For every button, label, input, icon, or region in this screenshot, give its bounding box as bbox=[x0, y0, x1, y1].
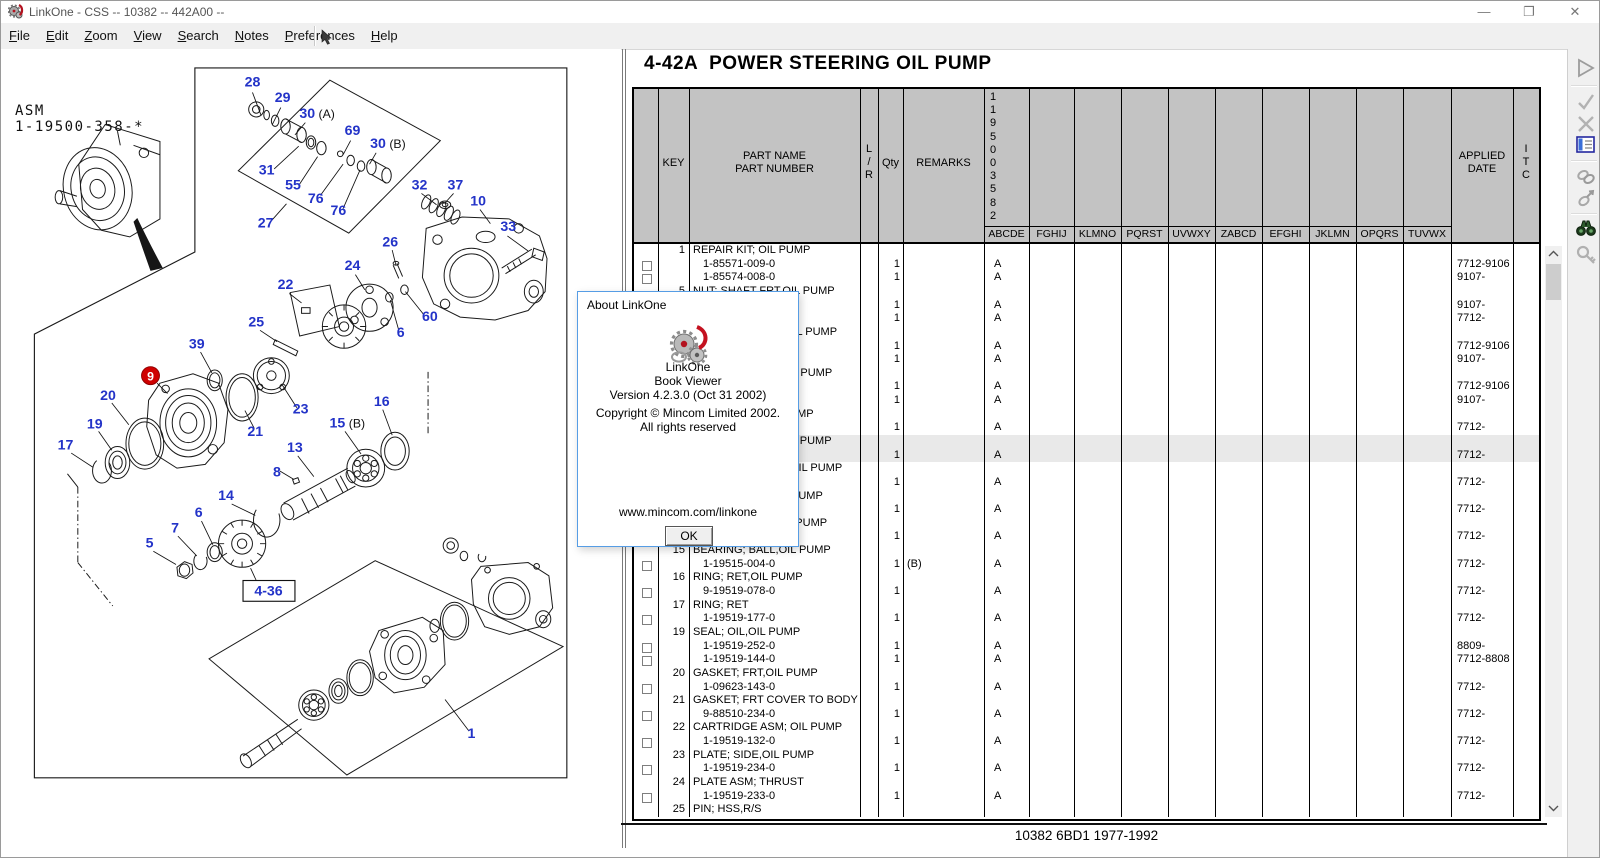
link-icon[interactable] bbox=[1575, 166, 1597, 188]
applied-date-cell: 7712- bbox=[1457, 476, 1485, 490]
grid-line bbox=[1215, 89, 1216, 242]
menu-notes[interactable]: Notes bbox=[227, 23, 277, 43]
table-scrollbar[interactable] bbox=[1545, 246, 1562, 817]
applicability-col-TUVWX: TUVWX bbox=[1403, 228, 1451, 240]
qty-cell: 1 bbox=[878, 558, 900, 572]
part-group-row[interactable]: 23 PLATE; SIDE,OIL PUMP bbox=[634, 749, 1539, 763]
qty-cell: 1 bbox=[878, 312, 900, 326]
part-number-row[interactable]: 1-19519-233-0 1 A 7712- bbox=[634, 790, 1539, 804]
play-icon[interactable] bbox=[1575, 57, 1597, 79]
callout-10[interactable]: 10 bbox=[470, 194, 486, 210]
callout-1[interactable]: 1 bbox=[468, 726, 476, 742]
applicability-cell: A bbox=[994, 353, 1001, 367]
part-group-row[interactable]: 22 CARTRIDGE ASM; OIL PUMP bbox=[634, 721, 1539, 735]
toolbar-separator bbox=[1571, 213, 1597, 215]
part-name-cell: RING; RET bbox=[693, 599, 749, 613]
applicability-cell: A bbox=[994, 653, 1001, 667]
part-number-row[interactable]: 1-19519-252-0 1 A 8809- bbox=[634, 640, 1539, 654]
binoculars-icon[interactable] bbox=[1575, 217, 1597, 239]
qty-cell: 1 bbox=[878, 653, 900, 667]
key-cell: 20 bbox=[658, 667, 685, 681]
callout-19[interactable]: 19 bbox=[87, 417, 103, 433]
callout-55[interactable]: 55 bbox=[285, 178, 301, 194]
callout-39[interactable]: 39 bbox=[189, 336, 205, 352]
part-name-cell: REPAIR KIT; OIL PUMP bbox=[693, 244, 810, 258]
part-number-row[interactable]: 1-85574-008-0 1 A 9107- bbox=[634, 271, 1539, 285]
callout-22[interactable]: 22 bbox=[278, 277, 294, 293]
part-number-cell: 9-19519-078-0 bbox=[703, 585, 775, 599]
callout-5[interactable]: 5 bbox=[146, 535, 154, 551]
key-cell: 24 bbox=[658, 776, 685, 790]
title-bar: LinkOne - CSS -- 10382 -- 442A00 -- — ❐ … bbox=[1, 1, 1600, 23]
callout-69[interactable]: 69 bbox=[345, 123, 361, 139]
callout-27[interactable]: 27 bbox=[258, 215, 274, 231]
key-cell: 22 bbox=[658, 721, 685, 735]
applicability-cell: A bbox=[994, 312, 1001, 326]
figure-frame bbox=[34, 68, 566, 778]
dialog-title-bar[interactable]: About LinkOne bbox=[578, 292, 798, 318]
applicability-cell: A bbox=[994, 612, 1001, 626]
qty-cell: 1 bbox=[878, 585, 900, 599]
applicability-cell: A bbox=[994, 258, 1001, 272]
callout-76[interactable]: 76 bbox=[331, 203, 347, 219]
applicability-cell: A bbox=[994, 394, 1001, 408]
qty-cell: 1 bbox=[878, 340, 900, 354]
qty-cell: 1 bbox=[878, 762, 900, 776]
subheader-line bbox=[984, 226, 1451, 227]
qty-cell: 1 bbox=[878, 530, 900, 544]
part-number-cell: 1-85574-008-0 bbox=[703, 271, 775, 285]
part-group-row[interactable]: 24 PLATE ASM; THRUST bbox=[634, 776, 1539, 790]
section-title: 4-42A POWER STEERING OIL PUMP bbox=[644, 53, 992, 75]
part-checkbox[interactable] bbox=[642, 793, 652, 803]
callout-31[interactable]: 31 bbox=[259, 163, 275, 179]
applicability-cell: A bbox=[994, 476, 1001, 490]
dialog-rights: All rights reserved bbox=[578, 420, 798, 434]
menu-bar: FileEditZoomViewSearchNotesPreferencesHe… bbox=[1, 23, 1600, 50]
part-number-row[interactable]: 9-19519-078-0 1 A 7712- bbox=[634, 585, 1539, 599]
applicability-col-PQRST: PQRST bbox=[1121, 228, 1168, 240]
applicability-col-FGHIJ: FGHIJ bbox=[1029, 228, 1074, 240]
close-button[interactable]: ✕ bbox=[1558, 1, 1592, 23]
part-number-row[interactable]: 1-19519-144-0 1 A 7712-8808 bbox=[634, 653, 1539, 667]
applied-date-cell: 7712- bbox=[1457, 503, 1485, 517]
dialog-url[interactable]: www.mincom.com/linkone bbox=[578, 505, 798, 519]
part-name-cell: PLATE ASM; THRUST bbox=[693, 776, 804, 790]
key-cell: 21 bbox=[658, 694, 685, 708]
qty-cell: 1 bbox=[878, 449, 900, 463]
grid-line bbox=[1121, 89, 1122, 242]
part-name-cell: GASKET; FRT,OIL PUMP bbox=[693, 667, 818, 681]
pointer-tool-icon[interactable] bbox=[320, 29, 334, 45]
callout-26[interactable]: 26 bbox=[382, 234, 398, 250]
applied-date-cell: 7712- bbox=[1457, 735, 1485, 749]
applied-date-cell: 7712- bbox=[1457, 762, 1485, 776]
figure-linework bbox=[55, 80, 563, 775]
applicability-cell: A bbox=[994, 530, 1001, 544]
scroll-up-icon[interactable] bbox=[1545, 246, 1562, 263]
part-group-row[interactable]: 16 RING; RET,OIL PUMP bbox=[634, 571, 1539, 585]
applicability-cell: A bbox=[994, 558, 1001, 572]
callout-29[interactable]: 29 bbox=[275, 90, 291, 106]
col-header-qty: Qty bbox=[878, 157, 903, 170]
qty-cell: 1 bbox=[878, 640, 900, 654]
applicability-cell: A bbox=[994, 762, 1001, 776]
part-name-cell: CARTRIDGE ASM; OIL PUMP bbox=[693, 721, 842, 735]
menu-view[interactable]: View bbox=[126, 23, 170, 43]
key-cell: 19 bbox=[658, 626, 685, 640]
applied-date-cell: 7712- bbox=[1457, 312, 1485, 326]
part-number-cell: 1-19519-252-0 bbox=[703, 640, 775, 654]
part-group-row[interactable]: 1 REPAIR KIT; OIL PUMP bbox=[634, 244, 1539, 258]
callout-33[interactable]: 33 bbox=[500, 219, 516, 235]
col-header-model-vertical: 1 1 9 5 0 0 3 5 8 2 bbox=[990, 91, 996, 223]
applied-date-cell: 9107- bbox=[1457, 299, 1485, 313]
grid-line bbox=[1356, 89, 1357, 242]
applied-date-cell: 7712- bbox=[1457, 558, 1485, 572]
col-header-key: KEY bbox=[658, 157, 689, 170]
callout-8[interactable]: 8 bbox=[273, 465, 281, 481]
callout-6[interactable]: 6 bbox=[397, 325, 405, 341]
applied-date-cell: 7712- bbox=[1457, 449, 1485, 463]
confirm-icon[interactable] bbox=[1575, 91, 1597, 113]
menu-file[interactable]: File bbox=[1, 23, 38, 43]
menu-edit[interactable]: Edit bbox=[38, 23, 76, 43]
callout-13[interactable]: 13 bbox=[287, 440, 303, 456]
part-checkbox[interactable] bbox=[642, 588, 652, 598]
part-checkbox[interactable] bbox=[642, 684, 652, 694]
linkone-window: LinkOne - CSS -- 10382 -- 442A00 -- — ❐ … bbox=[0, 0, 1600, 858]
applied-date-cell: 7712- bbox=[1457, 585, 1485, 599]
applied-date-cell: 7712- bbox=[1457, 681, 1485, 695]
applicability-col-KLMNO: KLMNO bbox=[1074, 228, 1121, 240]
toolbar-divider bbox=[1567, 49, 1568, 858]
applicability-cell: A bbox=[994, 421, 1001, 435]
applicability-cell: A bbox=[994, 585, 1001, 599]
restore-button[interactable]: ❐ bbox=[1512, 1, 1546, 23]
table-header: KEY PART NAME PART NUMBER L / R Qty REMA… bbox=[634, 89, 1539, 244]
cancel-icon[interactable] bbox=[1575, 113, 1597, 135]
part-group-row[interactable]: 21 GASKET; FRT COVER TO BODY bbox=[634, 694, 1539, 708]
callout-17[interactable]: 17 bbox=[58, 437, 74, 453]
qty-cell: 1 bbox=[878, 503, 900, 517]
qty-cell: 1 bbox=[878, 394, 900, 408]
qty-cell: 1 bbox=[878, 353, 900, 367]
applicability-cell: A bbox=[994, 503, 1001, 517]
callout-24[interactable]: 24 bbox=[345, 258, 361, 274]
part-checkbox[interactable] bbox=[642, 656, 652, 666]
qty-cell: 1 bbox=[878, 258, 900, 272]
minimize-button[interactable]: — bbox=[1467, 1, 1501, 23]
scroll-down-icon[interactable] bbox=[1545, 800, 1562, 817]
part-checkbox[interactable] bbox=[642, 738, 652, 748]
applicability-cell: A bbox=[994, 299, 1001, 313]
part-checkbox[interactable] bbox=[642, 615, 652, 625]
part-number-row[interactable]: 1-19519-132-0 1 A 7712- bbox=[634, 735, 1539, 749]
applicability-cell: A bbox=[994, 340, 1001, 354]
part-number-cell: 9-88510-234-0 bbox=[703, 708, 775, 722]
callout-numbers: 282930 (A)6930 (B)3155767627323710332624… bbox=[58, 75, 517, 742]
ok-button[interactable]: OK bbox=[665, 526, 713, 546]
applied-date-cell: 9107- bbox=[1457, 353, 1485, 367]
dialog-subtitle: Book Viewer bbox=[578, 374, 798, 388]
qty-cell: 1 bbox=[878, 271, 900, 285]
grid-line bbox=[1403, 89, 1404, 242]
qty-cell: 1 bbox=[878, 612, 900, 626]
col-header-applied-date: APPLIED DATE bbox=[1451, 150, 1513, 176]
part-number-row[interactable]: 1-19519-234-0 1 A 7712- bbox=[634, 762, 1539, 776]
key-9-badge[interactable]: 9 bbox=[142, 367, 160, 385]
grid-line bbox=[1029, 89, 1030, 242]
callout-7[interactable]: 7 bbox=[171, 520, 179, 536]
applicability-cell: A bbox=[994, 735, 1001, 749]
qty-cell: 1 bbox=[878, 380, 900, 394]
svg-text:4-36: 4-36 bbox=[254, 584, 282, 600]
dialog-version: Version 4.2.3.0 (Oct 31 2002) bbox=[578, 388, 798, 402]
callout-21[interactable]: 21 bbox=[247, 424, 263, 440]
exploded-view-diagram: 282930 (A)6930 (B)3155767627323710332624… bbox=[1, 49, 621, 858]
key-cell: 1 bbox=[658, 244, 685, 258]
grid-line bbox=[1168, 89, 1169, 242]
part-number-row[interactable]: 1-85571-009-0 1 A 7712-9106 bbox=[634, 258, 1539, 272]
applicability-cell: A bbox=[994, 380, 1001, 394]
ref-box-4-36[interactable]: 4-36 bbox=[243, 568, 295, 601]
applied-date-cell: 7712- bbox=[1457, 530, 1485, 544]
link-attach-icon[interactable] bbox=[1575, 188, 1597, 210]
applicability-cell: A bbox=[994, 449, 1001, 463]
callout-suffix: (B) bbox=[349, 417, 365, 431]
part-name-cell: RING; RET,OIL PUMP bbox=[693, 571, 803, 585]
applicability-col-JKLMN: JKLMN bbox=[1309, 228, 1356, 240]
zoom-key-icon[interactable] bbox=[1575, 244, 1597, 266]
part-checkbox[interactable] bbox=[642, 765, 652, 775]
part-checkbox[interactable] bbox=[642, 261, 652, 271]
part-number-row[interactable]: 9-88510-234-0 1 A 7712- bbox=[634, 708, 1539, 722]
grid-line bbox=[984, 89, 985, 242]
callout-suffix: (A) bbox=[319, 107, 335, 121]
grid-line bbox=[1074, 89, 1075, 242]
part-name-cell: PLATE; SIDE,OIL PUMP bbox=[693, 749, 814, 763]
callout-6[interactable]: 6 bbox=[195, 505, 203, 521]
applied-date-cell: 7712-9106 bbox=[1457, 258, 1510, 272]
col-header-remarks: REMARKS bbox=[903, 157, 984, 170]
part-number-cell: 1-85571-009-0 bbox=[703, 258, 775, 272]
part-checkbox[interactable] bbox=[642, 711, 652, 721]
part-group-row[interactable]: 19 SEAL; OIL,OIL PUMP bbox=[634, 626, 1539, 640]
applied-date-cell: 7712- bbox=[1457, 790, 1485, 804]
part-number-cell: 1-19519-233-0 bbox=[703, 790, 775, 804]
toolbar-separator bbox=[1571, 85, 1597, 87]
qty-cell: 1 bbox=[878, 790, 900, 804]
applicability-col-ABCDE: ABCDE bbox=[984, 228, 1029, 240]
menu-separator bbox=[314, 26, 316, 46]
remarks-cell: (B) bbox=[907, 558, 922, 572]
part-checkbox[interactable] bbox=[642, 274, 652, 284]
applied-date-cell: 8809- bbox=[1457, 640, 1485, 654]
key-cell: 25 bbox=[658, 803, 685, 817]
qty-cell: 1 bbox=[878, 476, 900, 490]
callout-20[interactable]: 20 bbox=[100, 388, 116, 404]
dialog-title: About LinkOne bbox=[587, 298, 666, 312]
applicability-cell: A bbox=[994, 708, 1001, 722]
scrollbar-thumb[interactable] bbox=[1546, 264, 1561, 300]
callout-23[interactable]: 23 bbox=[293, 401, 309, 417]
part-number-cell: 1-19519-144-0 bbox=[703, 653, 775, 667]
key-cell: 17 bbox=[658, 599, 685, 613]
callout-suffix: (B) bbox=[389, 137, 405, 151]
status-text: 10382 6BD1 1977-1992 bbox=[632, 828, 1541, 843]
applied-date-cell: 9107- bbox=[1457, 394, 1485, 408]
callout-25[interactable]: 25 bbox=[248, 315, 264, 331]
part-number-row[interactable]: 1-09623-143-0 1 A 7712- bbox=[634, 681, 1539, 695]
callout-15[interactable]: 15 bbox=[330, 416, 346, 432]
parts-list-icon[interactable] bbox=[1575, 134, 1597, 156]
col-header-lr: L / R bbox=[860, 143, 878, 182]
qty-cell: 1 bbox=[878, 735, 900, 749]
dialog-copyright: Copyright © Mincom Limited 2002. bbox=[578, 406, 798, 420]
callout-32[interactable]: 32 bbox=[412, 178, 428, 194]
app-icon bbox=[8, 4, 24, 20]
key-cell: 23 bbox=[658, 749, 685, 763]
part-group-row[interactable]: 20 GASKET; FRT,OIL PUMP bbox=[634, 667, 1539, 681]
diagram-panel[interactable]: 282930 (A)6930 (B)3155767627323710332624… bbox=[1, 49, 621, 858]
part-group-row[interactable]: 25 PIN; HSS,R/S bbox=[634, 803, 1539, 817]
part-number-cell: 1-19519-177-0 bbox=[703, 612, 775, 626]
key-cell: 16 bbox=[658, 571, 685, 585]
svg-text:9: 9 bbox=[147, 369, 154, 383]
col-header-part: PART NAME PART NUMBER bbox=[689, 150, 860, 176]
callout-60[interactable]: 60 bbox=[422, 309, 438, 325]
applicability-cell: A bbox=[994, 790, 1001, 804]
callout-28[interactable]: 28 bbox=[245, 75, 261, 91]
qty-cell: 1 bbox=[878, 708, 900, 722]
applied-date-cell: 7712- bbox=[1457, 421, 1485, 435]
part-number-cell: 1-09623-143-0 bbox=[703, 681, 775, 695]
part-name-cell: SEAL; OIL,OIL PUMP bbox=[693, 626, 800, 640]
part-name-cell: PIN; HSS,R/S bbox=[693, 803, 761, 817]
applicability-cell: A bbox=[994, 640, 1001, 654]
col-header-itc: I T C bbox=[1513, 143, 1539, 182]
part-number-cell: 1-19515-004-0 bbox=[703, 558, 775, 572]
callout-76[interactable]: 76 bbox=[308, 191, 324, 207]
about-dialog: About LinkOne LinkOne Book Viewer Versio… bbox=[577, 291, 799, 547]
grid-line bbox=[1309, 89, 1310, 242]
part-number-row[interactable]: 1-19519-177-0 1 A 7712- bbox=[634, 612, 1539, 626]
applicability-cell: A bbox=[994, 681, 1001, 695]
applied-date-cell: 7712- bbox=[1457, 612, 1485, 626]
part-checkbox[interactable] bbox=[642, 643, 652, 653]
toolbar-separator bbox=[1571, 160, 1597, 162]
callout-14[interactable]: 14 bbox=[218, 488, 234, 504]
applicability-col-ZABCD: ZABCD bbox=[1215, 228, 1262, 240]
qty-cell: 1 bbox=[878, 681, 900, 695]
applied-date-cell: 7712-9106 bbox=[1457, 380, 1510, 394]
part-name-cell: GASKET; FRT COVER TO BODY bbox=[693, 694, 858, 708]
part-group-row[interactable]: 17 RING; RET bbox=[634, 599, 1539, 613]
menu-help[interactable]: Help bbox=[363, 23, 406, 43]
part-checkbox[interactable] bbox=[642, 561, 652, 571]
window-title: LinkOne - CSS -- 10382 -- 442A00 -- bbox=[29, 5, 224, 19]
part-number-cell: 1-19519-234-0 bbox=[703, 762, 775, 776]
applicability-col-EFGHI: EFGHI bbox=[1262, 228, 1309, 240]
callout-37[interactable]: 37 bbox=[448, 178, 464, 194]
applied-date-cell: 7712- bbox=[1457, 708, 1485, 722]
callout-30[interactable]: 30 bbox=[370, 136, 386, 152]
menu-search[interactable]: Search bbox=[170, 23, 227, 43]
callout-16[interactable]: 16 bbox=[374, 394, 390, 410]
dialog-product-name: LinkOne bbox=[578, 360, 798, 374]
part-number-row[interactable]: 1-19515-004-0 1 (B) A 7712- bbox=[634, 558, 1539, 572]
qty-cell: 1 bbox=[878, 299, 900, 313]
callout-30[interactable]: 30 bbox=[299, 106, 315, 122]
asm-number-label: ASM 1-19500-358-* bbox=[15, 103, 144, 135]
applied-date-cell: 7712-8808 bbox=[1457, 653, 1510, 667]
applicability-col-UVWXY: UVWXY bbox=[1168, 228, 1215, 240]
qty-cell: 1 bbox=[878, 421, 900, 435]
grid-line bbox=[1262, 89, 1263, 242]
status-divider bbox=[621, 823, 1547, 825]
applied-date-cell: 7712-9106 bbox=[1457, 340, 1510, 354]
part-number-cell: 1-19519-132-0 bbox=[703, 735, 775, 749]
applicability-cell: A bbox=[994, 271, 1001, 285]
applicability-col-OPQRS: OPQRS bbox=[1356, 228, 1403, 240]
menu-zoom[interactable]: Zoom bbox=[76, 23, 125, 43]
applied-date-cell: 9107- bbox=[1457, 271, 1485, 285]
